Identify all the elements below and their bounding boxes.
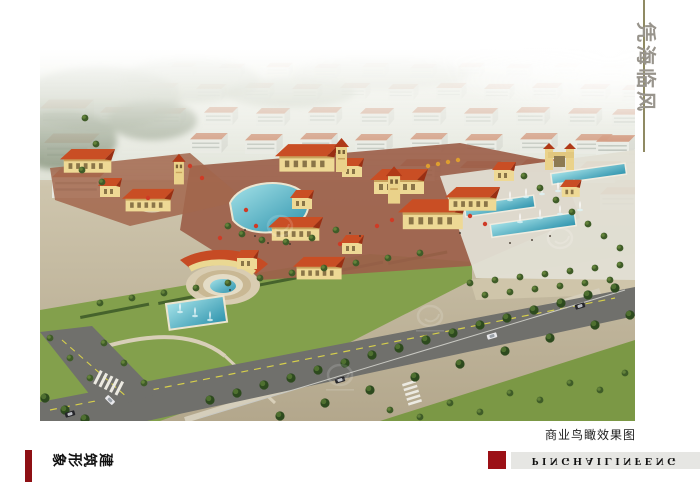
footer-brand-bar: PINGHAILINFENG [511, 452, 700, 469]
page-title: 凭海临风 [633, 22, 662, 114]
footer-brand-text: PINGHAILINFENG [532, 455, 679, 467]
rendering-caption: 商业鸟瞰效果图 [40, 426, 636, 443]
footer-left-accent-bar [25, 450, 32, 482]
presentation-page: { "title": { "text": "凭海临风", "color": "#… [0, 0, 700, 495]
footer-accent-square [488, 451, 506, 469]
footer-left-label: 建筑形象 [50, 453, 112, 469]
rendering-image [40, 48, 635, 421]
